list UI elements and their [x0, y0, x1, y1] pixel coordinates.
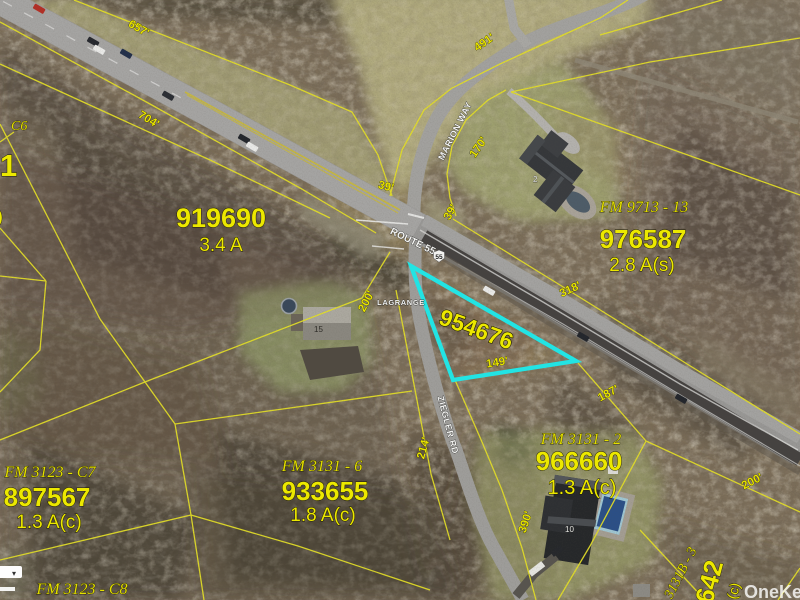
svg-text:933655: 933655 — [282, 476, 369, 506]
svg-text:C6: C6 — [11, 119, 27, 134]
svg-text:3.4 A: 3.4 A — [199, 235, 243, 256]
svg-text:976587: 976587 — [600, 224, 687, 254]
svg-text:FM 3123 - C8: FM 3123 - C8 — [35, 581, 127, 598]
svg-text:1.3 A(c): 1.3 A(c) — [548, 477, 617, 499]
svg-text:1.8 A(c): 1.8 A(c) — [290, 505, 355, 526]
svg-text:1: 1 — [0, 148, 17, 183]
svg-text:2.8 A(s): 2.8 A(s) — [609, 255, 674, 276]
svg-text:FM 3131 - 6: FM 3131 - 6 — [281, 458, 362, 475]
svg-text:966660: 966660 — [536, 446, 623, 476]
svg-text:): ) — [0, 207, 3, 226]
svg-text:FM 3123 - C7: FM 3123 - C7 — [3, 464, 96, 481]
svg-text:OneKey MLS: OneKey MLS — [744, 582, 800, 600]
svg-text:▾: ▾ — [12, 569, 16, 578]
svg-text:FM 3131 - 2: FM 3131 - 2 — [540, 431, 621, 448]
svg-text:55: 55 — [435, 254, 443, 261]
svg-text:LAGRANGE: LAGRANGE — [377, 298, 425, 307]
svg-text:FM 9713 - 13: FM 9713 - 13 — [599, 199, 688, 216]
svg-text:897567: 897567 — [4, 482, 91, 512]
svg-text:919690: 919690 — [176, 203, 266, 233]
svg-text:1.3 A(c): 1.3 A(c) — [16, 512, 81, 533]
